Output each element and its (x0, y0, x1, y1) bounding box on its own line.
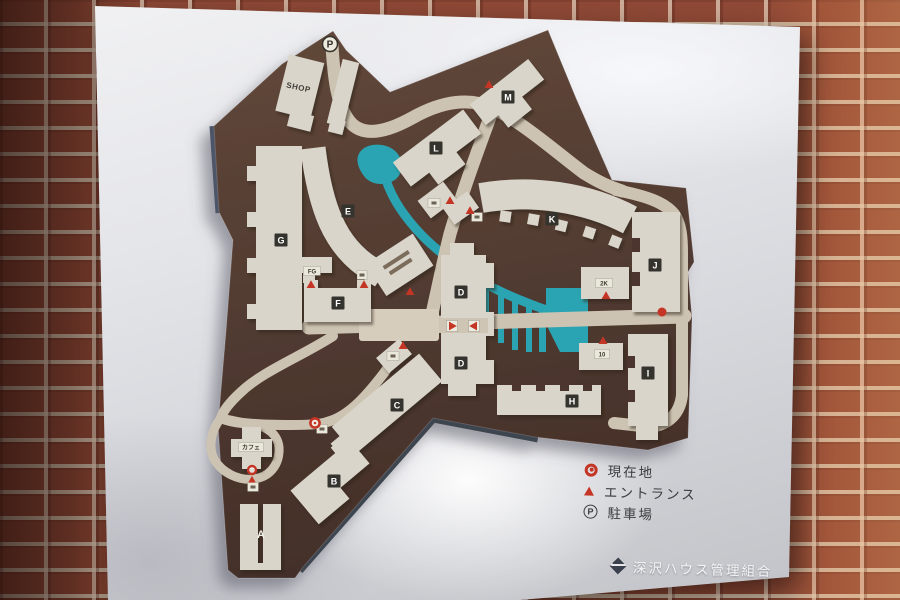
svg-text:D: D (458, 288, 465, 298)
small-label-box (357, 271, 367, 280)
building-i-footprint (628, 334, 668, 440)
svg-text:P: P (327, 40, 334, 51)
entrance-icon (584, 486, 594, 495)
building-h-footprint (497, 385, 601, 415)
parking-icon: P (583, 504, 597, 518)
svg-text:カフェ: カフェ (242, 444, 260, 451)
svg-text:2K: 2K (600, 281, 608, 287)
building-label-chip-l: L (430, 142, 443, 155)
building-label-chip-e: E (342, 205, 355, 218)
legend-parking: P 駐車場 (583, 503, 696, 522)
svg-text:K: K (549, 215, 556, 225)
small-label-box-2k: 2K (596, 279, 613, 288)
association-logo-icon (610, 557, 627, 574)
building-label-chip-d: D (455, 286, 468, 299)
svg-text:J: J (652, 261, 657, 271)
svg-text:B: B (331, 477, 338, 487)
building-label-a: A (257, 529, 265, 541)
building-label-chip-d: D (455, 357, 468, 370)
small-label-box-カフェ: カフェ (239, 443, 264, 452)
sign-board: SHOPABCDDEFGHIJKLMFG2K10カフェ P 現在地 エントランス… (0, 0, 900, 600)
legend-entrance: エントランス (584, 482, 697, 501)
sign-board-wrap: SHOPABCDDEFGHIJKLMFG2K10カフェ P 現在地 エントランス… (0, 0, 900, 600)
svg-text:FG: FG (308, 269, 317, 275)
svg-text:G: G (277, 236, 284, 246)
building-label-chip-g: G (275, 234, 288, 247)
legend-label: 駐車場 (607, 502, 654, 523)
current-location-icon (584, 463, 597, 476)
association-name: 深沢ハウス管理組合 (633, 556, 773, 580)
legend-label: エントランス (604, 481, 697, 504)
building-label-chip-c: C (391, 399, 404, 412)
legend-label: 現在地 (607, 460, 654, 481)
map-legend: 現在地 エントランス P 駐車場 (583, 461, 697, 527)
parking-marker: P (323, 37, 338, 52)
svg-text:L: L (433, 144, 439, 154)
legend-current-location: 現在地 (584, 461, 697, 480)
red-dot-marker (658, 308, 667, 317)
building-label-chip-b: B (328, 475, 341, 488)
small-label-box (428, 199, 440, 208)
small-label-box-fg: FG (304, 267, 321, 276)
building-label-chip-i: I (642, 367, 655, 380)
current-location-marker (310, 418, 319, 427)
photo-of-map-sign: SHOPABCDDEFGHIJKLMFG2K10カフェ P 現在地 エントランス… (0, 0, 900, 600)
svg-text:D: D (458, 359, 465, 369)
entrance-passage-marker (469, 321, 480, 332)
svg-text:F: F (335, 299, 341, 309)
building-label-chip-m: M (502, 91, 515, 104)
building-label-chip-k: K (546, 213, 559, 226)
building-label-chip-f: F (332, 297, 345, 310)
svg-text:E: E (345, 207, 351, 217)
site-map: SHOPABCDDEFGHIJKLMFG2K10カフェ P (0, 0, 900, 600)
small-label-box-10: 10 (595, 350, 610, 359)
small-label-box (387, 352, 399, 361)
building-label-chip-j: J (649, 259, 662, 272)
svg-text:H: H (569, 397, 576, 407)
water-channel (539, 305, 546, 352)
small-label-box (248, 483, 259, 492)
building-label-chip-h: H (566, 395, 579, 408)
svg-text:C: C (394, 401, 401, 411)
svg-text:M: M (504, 93, 512, 103)
svg-text:I: I (647, 369, 650, 379)
entrance-passage-marker (447, 321, 458, 332)
svg-text:10: 10 (599, 352, 606, 358)
